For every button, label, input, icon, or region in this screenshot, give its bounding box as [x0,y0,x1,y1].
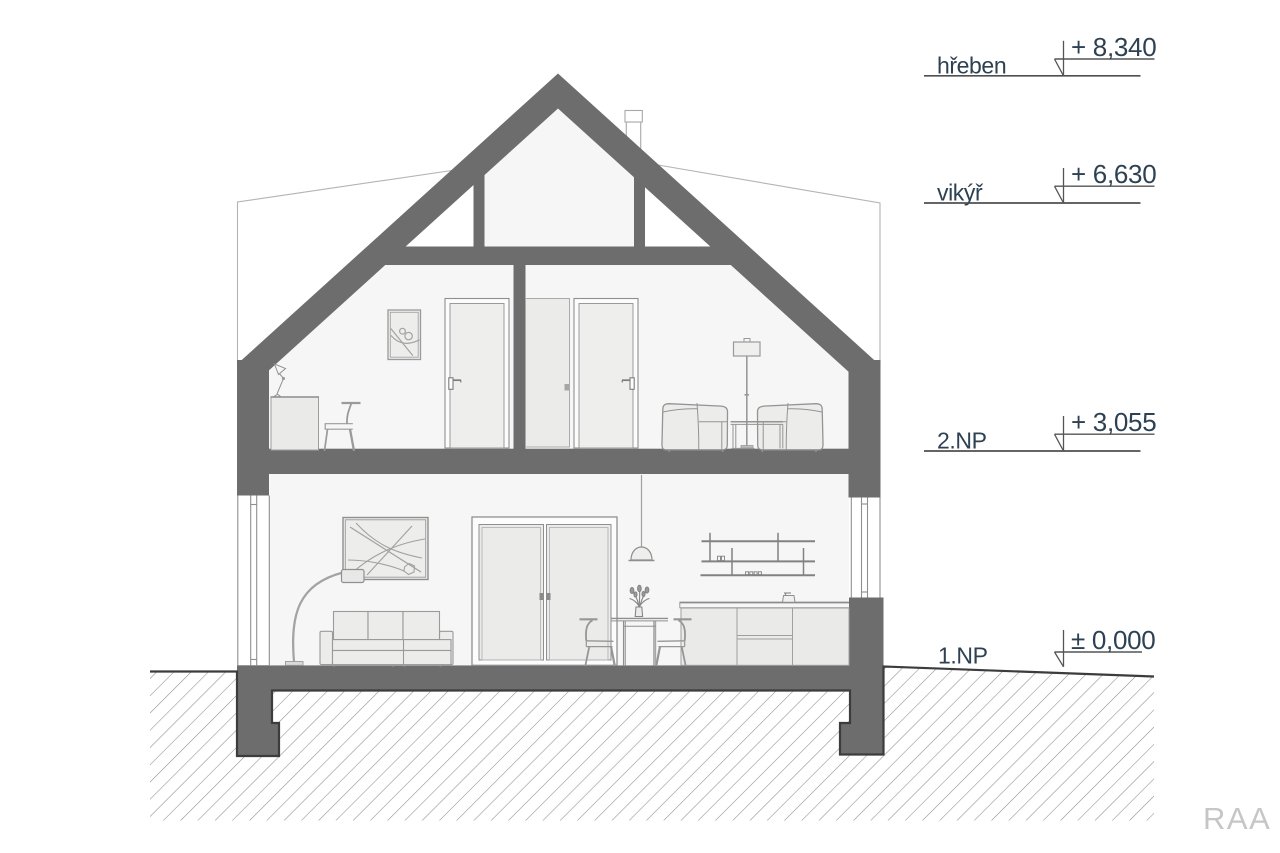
svg-text:+ 6,630: + 6,630 [1071,159,1156,189]
svg-text:hřeben: hřeben [937,53,1006,79]
svg-text:+ 8,340: + 8,340 [1071,32,1156,62]
svg-text:+ 3,055: + 3,055 [1071,407,1156,437]
svg-text:RAA: RAA [1203,801,1271,836]
svg-text:± 0,000: ± 0,000 [1071,625,1155,655]
svg-text:1.NP: 1.NP [938,643,988,669]
svg-text:2.NP: 2.NP [937,428,987,454]
svg-text:vikýř: vikýř [937,180,984,206]
